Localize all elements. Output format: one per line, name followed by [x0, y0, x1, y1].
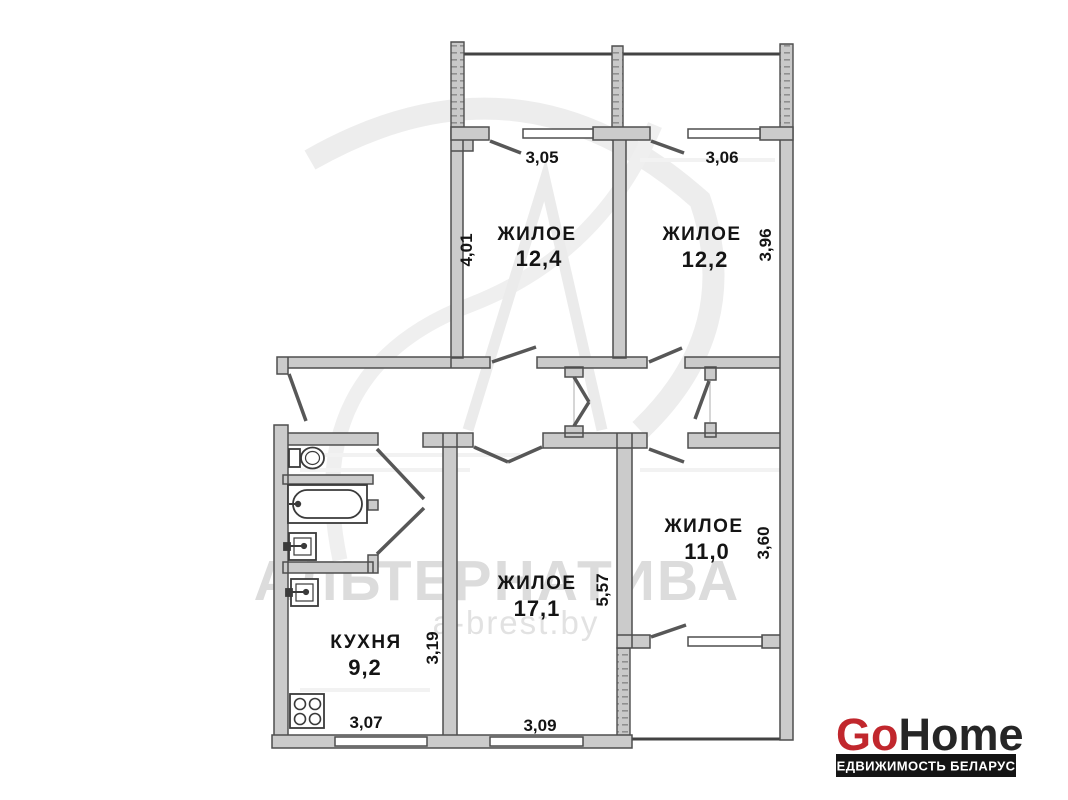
room-door-leaf — [649, 449, 684, 462]
logo-tagline: НЕДВИЖИМОСТЬ БЕЛАРУСИ — [827, 759, 1025, 774]
room-area-living-2: 12,2 — [682, 247, 729, 272]
gohome-wordmark: GoHome — [836, 709, 1024, 760]
room-label-kitchen: КУХНЯ — [330, 632, 401, 653]
dim-width-room3: 3,09 — [523, 716, 556, 735]
gohome-logo: GoHome НЕДВИЖИМОСТЬ БЕЛАРУСИ — [827, 709, 1025, 777]
sink-icon — [286, 579, 318, 606]
floorplan-image: АЛЬТЕРНАТИВА a-brest.by — [0, 0, 1068, 800]
room-label-living-4: ЖИЛОЕ — [663, 516, 743, 537]
logo-part-home: Home — [899, 709, 1024, 760]
dim-height-room4: 3,60 — [754, 526, 773, 559]
stove-icon — [290, 694, 324, 728]
closet-door-leaf — [695, 381, 709, 419]
logo-part-go: Go — [836, 709, 899, 760]
dim-height-room3: 5,57 — [593, 573, 612, 606]
room-area-living-4: 11,0 — [684, 539, 730, 564]
room-door-leaf — [649, 348, 682, 362]
bathtub-icon — [288, 485, 367, 523]
sink-icon — [284, 533, 316, 560]
dim-height-room1: 4,01 — [457, 233, 476, 266]
room-area-living-3: 17,1 — [514, 596, 561, 621]
bath-door-leaf — [377, 508, 424, 554]
room-label-living-2: ЖИЛОЕ — [661, 224, 741, 245]
balcony-door-leaf — [490, 141, 521, 153]
balcony-door-leaf — [651, 141, 684, 153]
floorplan-svg: АЛЬТЕРНАТИВА a-brest.by — [0, 0, 1068, 800]
dim-width-room2: 3,06 — [705, 148, 738, 167]
room-label-living-3: ЖИЛОЕ — [496, 573, 576, 594]
room-label-living-1: ЖИЛОЕ — [496, 224, 576, 245]
room-area-kitchen: 9,2 — [348, 655, 382, 680]
dim-height-kitchen: 3,19 — [423, 631, 442, 664]
dim-width-kitchen: 3,07 — [349, 713, 382, 732]
balcony-door-leaf — [651, 625, 686, 637]
room-area-living-1: 12,4 — [516, 246, 563, 271]
dim-width-room1: 3,05 — [525, 148, 558, 167]
toilet-icon — [289, 448, 324, 469]
hall-door-leaf — [574, 402, 589, 426]
entrance-door-leaf — [289, 374, 306, 421]
dim-height-room2: 3,96 — [756, 228, 775, 261]
